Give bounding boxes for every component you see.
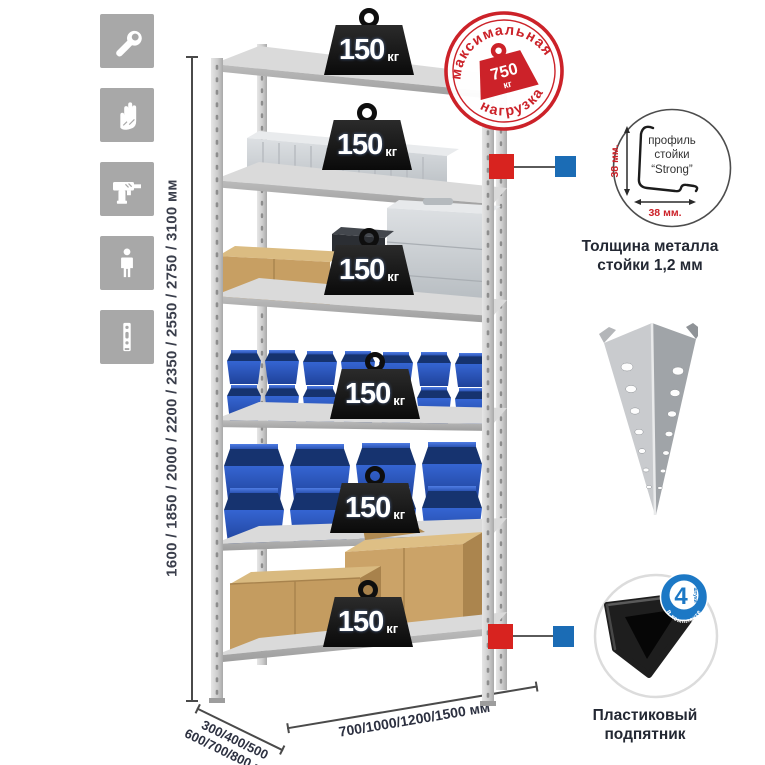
shelf-load-badge: 150кг [322, 103, 412, 170]
profile-label-2: стойки [654, 149, 689, 161]
shelf-load-badge: 150кг [330, 466, 420, 533]
height-dimension-label: 1600 / 1850 / 2000 / 2200 / 2350 / 2550 … [164, 179, 181, 577]
person-icon [107, 243, 147, 283]
feature-tile-person [100, 236, 154, 290]
shelf-load-badge: 150кг [323, 580, 413, 647]
post-profile-detail: 38 мм. 38 мм. профиль стойки “Strong” [610, 106, 736, 232]
angle-post-image [598, 315, 698, 520]
shelf-load-badge: 150кг [324, 8, 414, 75]
profile-dim-horizontal: 38 мм. [648, 207, 681, 219]
feature-tile-drill [100, 162, 154, 216]
profile-label-1: профиль [648, 135, 696, 147]
callout-marker-red-top [489, 154, 514, 179]
height-dimension-line [191, 56, 193, 702]
rack-post-icon [107, 317, 147, 357]
plastic-foot-detail: 4 штуки в комплекте [591, 571, 723, 703]
shelving-rack-infographic: 1600 / 1850 / 2000 / 2200 / 2350 / 2550 … [0, 0, 765, 765]
drill-icon [106, 168, 148, 210]
shelf-load-badge: 150кг [330, 352, 420, 419]
profile-caption: Толщина металла стойки 1,2 мм [565, 237, 735, 276]
gloves-icon [107, 95, 147, 135]
foot-caption: Пластиковый подпятник [560, 706, 730, 745]
feature-tile-gloves [100, 88, 154, 142]
max-load-stamp: максимальная нагрузка 750 кг [440, 7, 568, 135]
callout-marker-red-bottom [488, 624, 513, 649]
profile-dim-vertical: 38 мм. [610, 144, 621, 177]
wrench-icon [106, 20, 148, 62]
feature-tile-post-profile [100, 310, 154, 364]
badge-number: 4 [674, 583, 688, 610]
badge-word: штуки [692, 587, 698, 602]
callout-line-bottom [511, 635, 555, 637]
shelf-load-badge: 150кг [324, 228, 414, 295]
feature-tile-assembly [100, 14, 154, 68]
callout-marker-blue-top [555, 156, 576, 177]
callout-line-top [513, 166, 557, 168]
profile-label-3: “Strong” [651, 164, 693, 176]
callout-marker-blue-bottom [553, 626, 574, 647]
